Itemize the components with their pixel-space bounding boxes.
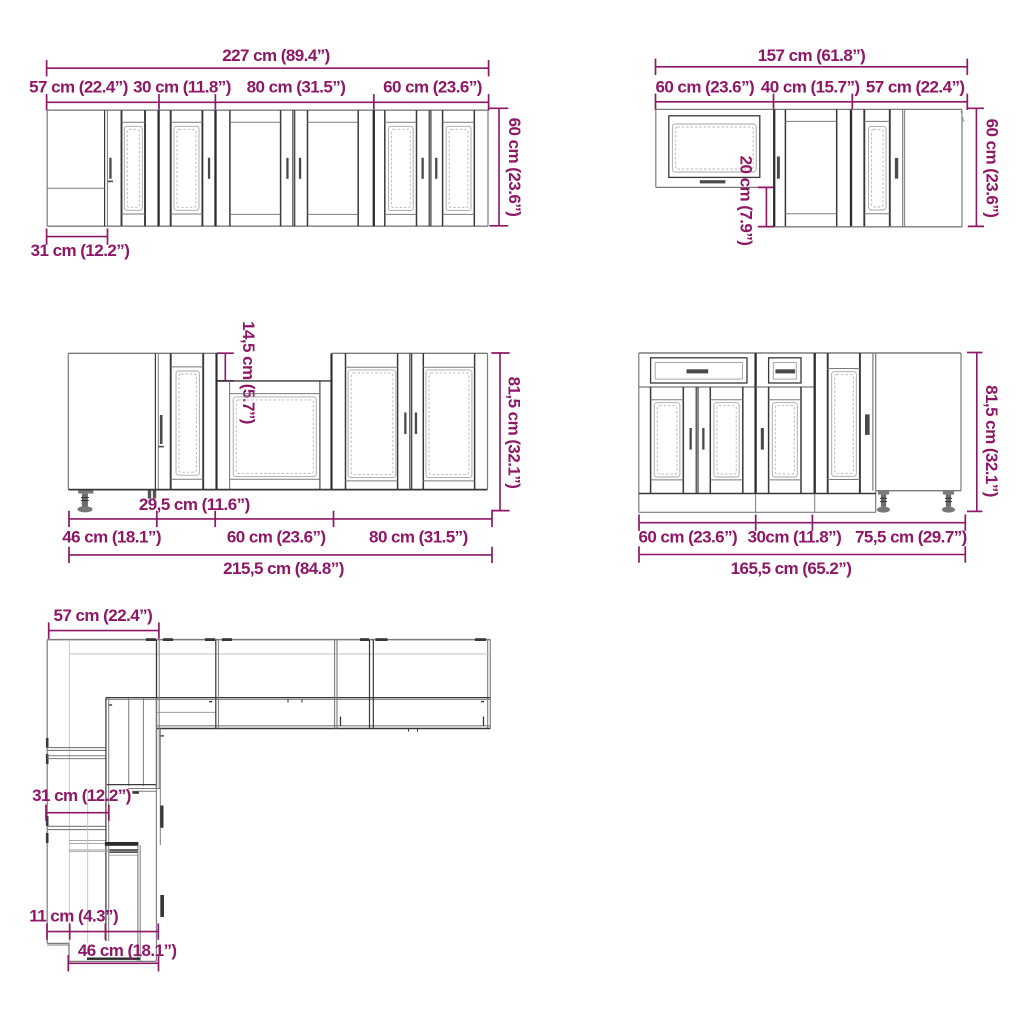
svg-text:14,5 cm (5.7”): 14,5 cm (5.7”) bbox=[239, 321, 258, 424]
svg-text:215,5 cm (84.8”): 215,5 cm (84.8”) bbox=[223, 559, 344, 578]
svg-text:227 cm (89.4”): 227 cm (89.4”) bbox=[222, 46, 330, 65]
svg-text:60 cm (23.6”): 60 cm (23.6”) bbox=[982, 119, 1001, 218]
svg-text:60 cm (23.6”): 60 cm (23.6”) bbox=[655, 77, 754, 96]
svg-text:31 cm (12.2”): 31 cm (12.2”) bbox=[31, 241, 130, 260]
svg-text:46 cm (18.1”): 46 cm (18.1”) bbox=[62, 527, 161, 546]
svg-text:81,5 cm (32.1”): 81,5 cm (32.1”) bbox=[505, 377, 524, 489]
svg-text:81,5 cm (32.1”): 81,5 cm (32.1”) bbox=[982, 385, 1001, 497]
svg-text:60 cm (23.6”): 60 cm (23.6”) bbox=[638, 527, 737, 546]
svg-text:40 cm (15.7”): 40 cm (15.7”) bbox=[761, 77, 860, 96]
svg-text:57 cm (22.4”): 57 cm (22.4”) bbox=[54, 606, 153, 625]
svg-text:31 cm (12.2”): 31 cm (12.2”) bbox=[32, 786, 131, 805]
svg-text:60 cm (23.6”): 60 cm (23.6”) bbox=[227, 527, 326, 546]
svg-text:60 cm (23.6”): 60 cm (23.6”) bbox=[505, 118, 524, 217]
svg-text:29,5 cm (11.6”): 29,5 cm (11.6”) bbox=[139, 495, 250, 514]
svg-text:57 cm (22.4”): 57 cm (22.4”) bbox=[866, 77, 965, 96]
svg-text:30 cm (11.8”): 30 cm (11.8”) bbox=[133, 77, 231, 96]
svg-text:165,5 cm (65.2”): 165,5 cm (65.2”) bbox=[731, 559, 852, 578]
svg-text:157 cm (61.8”): 157 cm (61.8”) bbox=[758, 46, 866, 65]
svg-text:57 cm (22.4”): 57 cm (22.4”) bbox=[29, 77, 128, 96]
svg-text:60 cm (23.6”): 60 cm (23.6”) bbox=[383, 77, 482, 96]
svg-text:30cm (11.8”): 30cm (11.8”) bbox=[748, 527, 842, 546]
svg-text:75,5 cm (29.7”): 75,5 cm (29.7”) bbox=[855, 527, 967, 546]
svg-text:46 cm (18.1”): 46 cm (18.1”) bbox=[78, 941, 177, 960]
svg-text:80 cm (31.5”): 80 cm (31.5”) bbox=[369, 527, 468, 546]
svg-text:11 cm (4.3”): 11 cm (4.3”) bbox=[29, 906, 118, 925]
svg-text:20 cm (7.9”): 20 cm (7.9”) bbox=[737, 156, 756, 246]
svg-text:80 cm (31.5”): 80 cm (31.5”) bbox=[247, 77, 346, 96]
